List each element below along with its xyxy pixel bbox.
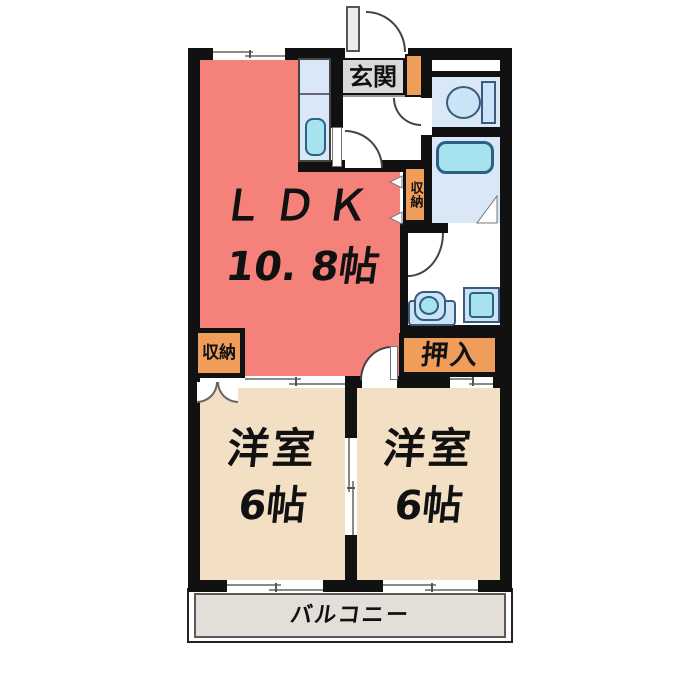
floor-plan: 玄関 収納 押入 収納 ＬＤＫ 10. 8帖 洋室 6帖 洋室 6帖 バルコニー — [0, 0, 700, 700]
wall-left — [188, 48, 200, 592]
toilet-tank-icon — [481, 81, 496, 124]
entrance-label-box: 玄関 — [341, 58, 405, 95]
bathtub-icon — [436, 141, 494, 174]
wall-bottom-mid — [323, 580, 383, 592]
balcony-label: バルコニー — [192, 603, 508, 629]
ldk-storage-label: 収納 — [202, 345, 236, 362]
shoe-cabinet — [405, 54, 423, 97]
entrance-door-arc — [366, 11, 406, 52]
wall-bath-washroom — [400, 223, 448, 233]
bedroom-left-label: 洋室 — [197, 424, 347, 474]
wall-bottom-right — [478, 580, 512, 592]
bedroom-right-door-leaf — [390, 346, 398, 380]
kitchen-sink-icon — [305, 118, 326, 156]
washbasin-icon — [414, 291, 446, 321]
bedroom-right-label: 洋室 — [354, 424, 502, 474]
ldk-storage-box: 収納 — [193, 328, 245, 378]
wall-divider-b — [397, 376, 450, 388]
bedroom-left-sliding-door — [245, 377, 345, 386]
bedroom-left-size: 6帖 — [198, 483, 348, 529]
ldk-label: ＬＤＫ — [197, 183, 403, 229]
wall-toilet-bath — [421, 127, 500, 137]
kitchen-counter-divider — [300, 93, 329, 95]
oshiire-label: 押入 — [419, 342, 480, 369]
hall-storage-box: 収納 — [403, 166, 427, 223]
bedroom-right-size: 6帖 — [355, 483, 503, 529]
balcony-window-left — [227, 583, 323, 592]
wall-right — [500, 48, 512, 592]
toilet-doorway — [421, 98, 432, 135]
washing-machine-drum — [469, 292, 494, 318]
wall-bedroom-mid-bottom — [345, 535, 357, 580]
washing-machine-icon — [463, 287, 500, 323]
ldk-top-window — [213, 50, 285, 58]
ldk-size-label: 10. 8帖 — [191, 242, 413, 292]
washbasin-bowl — [419, 296, 439, 315]
wall-bottom-left — [188, 580, 227, 592]
oshiire-box: 押入 — [399, 333, 500, 377]
wall-toilet-window-bar — [425, 71, 502, 77]
entrance-step-line — [343, 95, 405, 97]
entrance-door-leaf — [346, 6, 360, 52]
bedroom-divider-sliding-door — [347, 438, 355, 535]
bath-folding-door-icon — [476, 195, 498, 224]
balcony-window-right — [383, 583, 478, 592]
hall-storage-label: 収納 — [409, 181, 422, 209]
entrance-label: 玄関 — [349, 65, 397, 89]
kitchen-counter — [298, 58, 331, 162]
wall-divider-c — [493, 376, 512, 388]
ldk-hall-door-leaf — [332, 127, 342, 167]
oshiire-sliding-door — [450, 377, 493, 386]
toilet-bowl-icon — [446, 86, 481, 119]
